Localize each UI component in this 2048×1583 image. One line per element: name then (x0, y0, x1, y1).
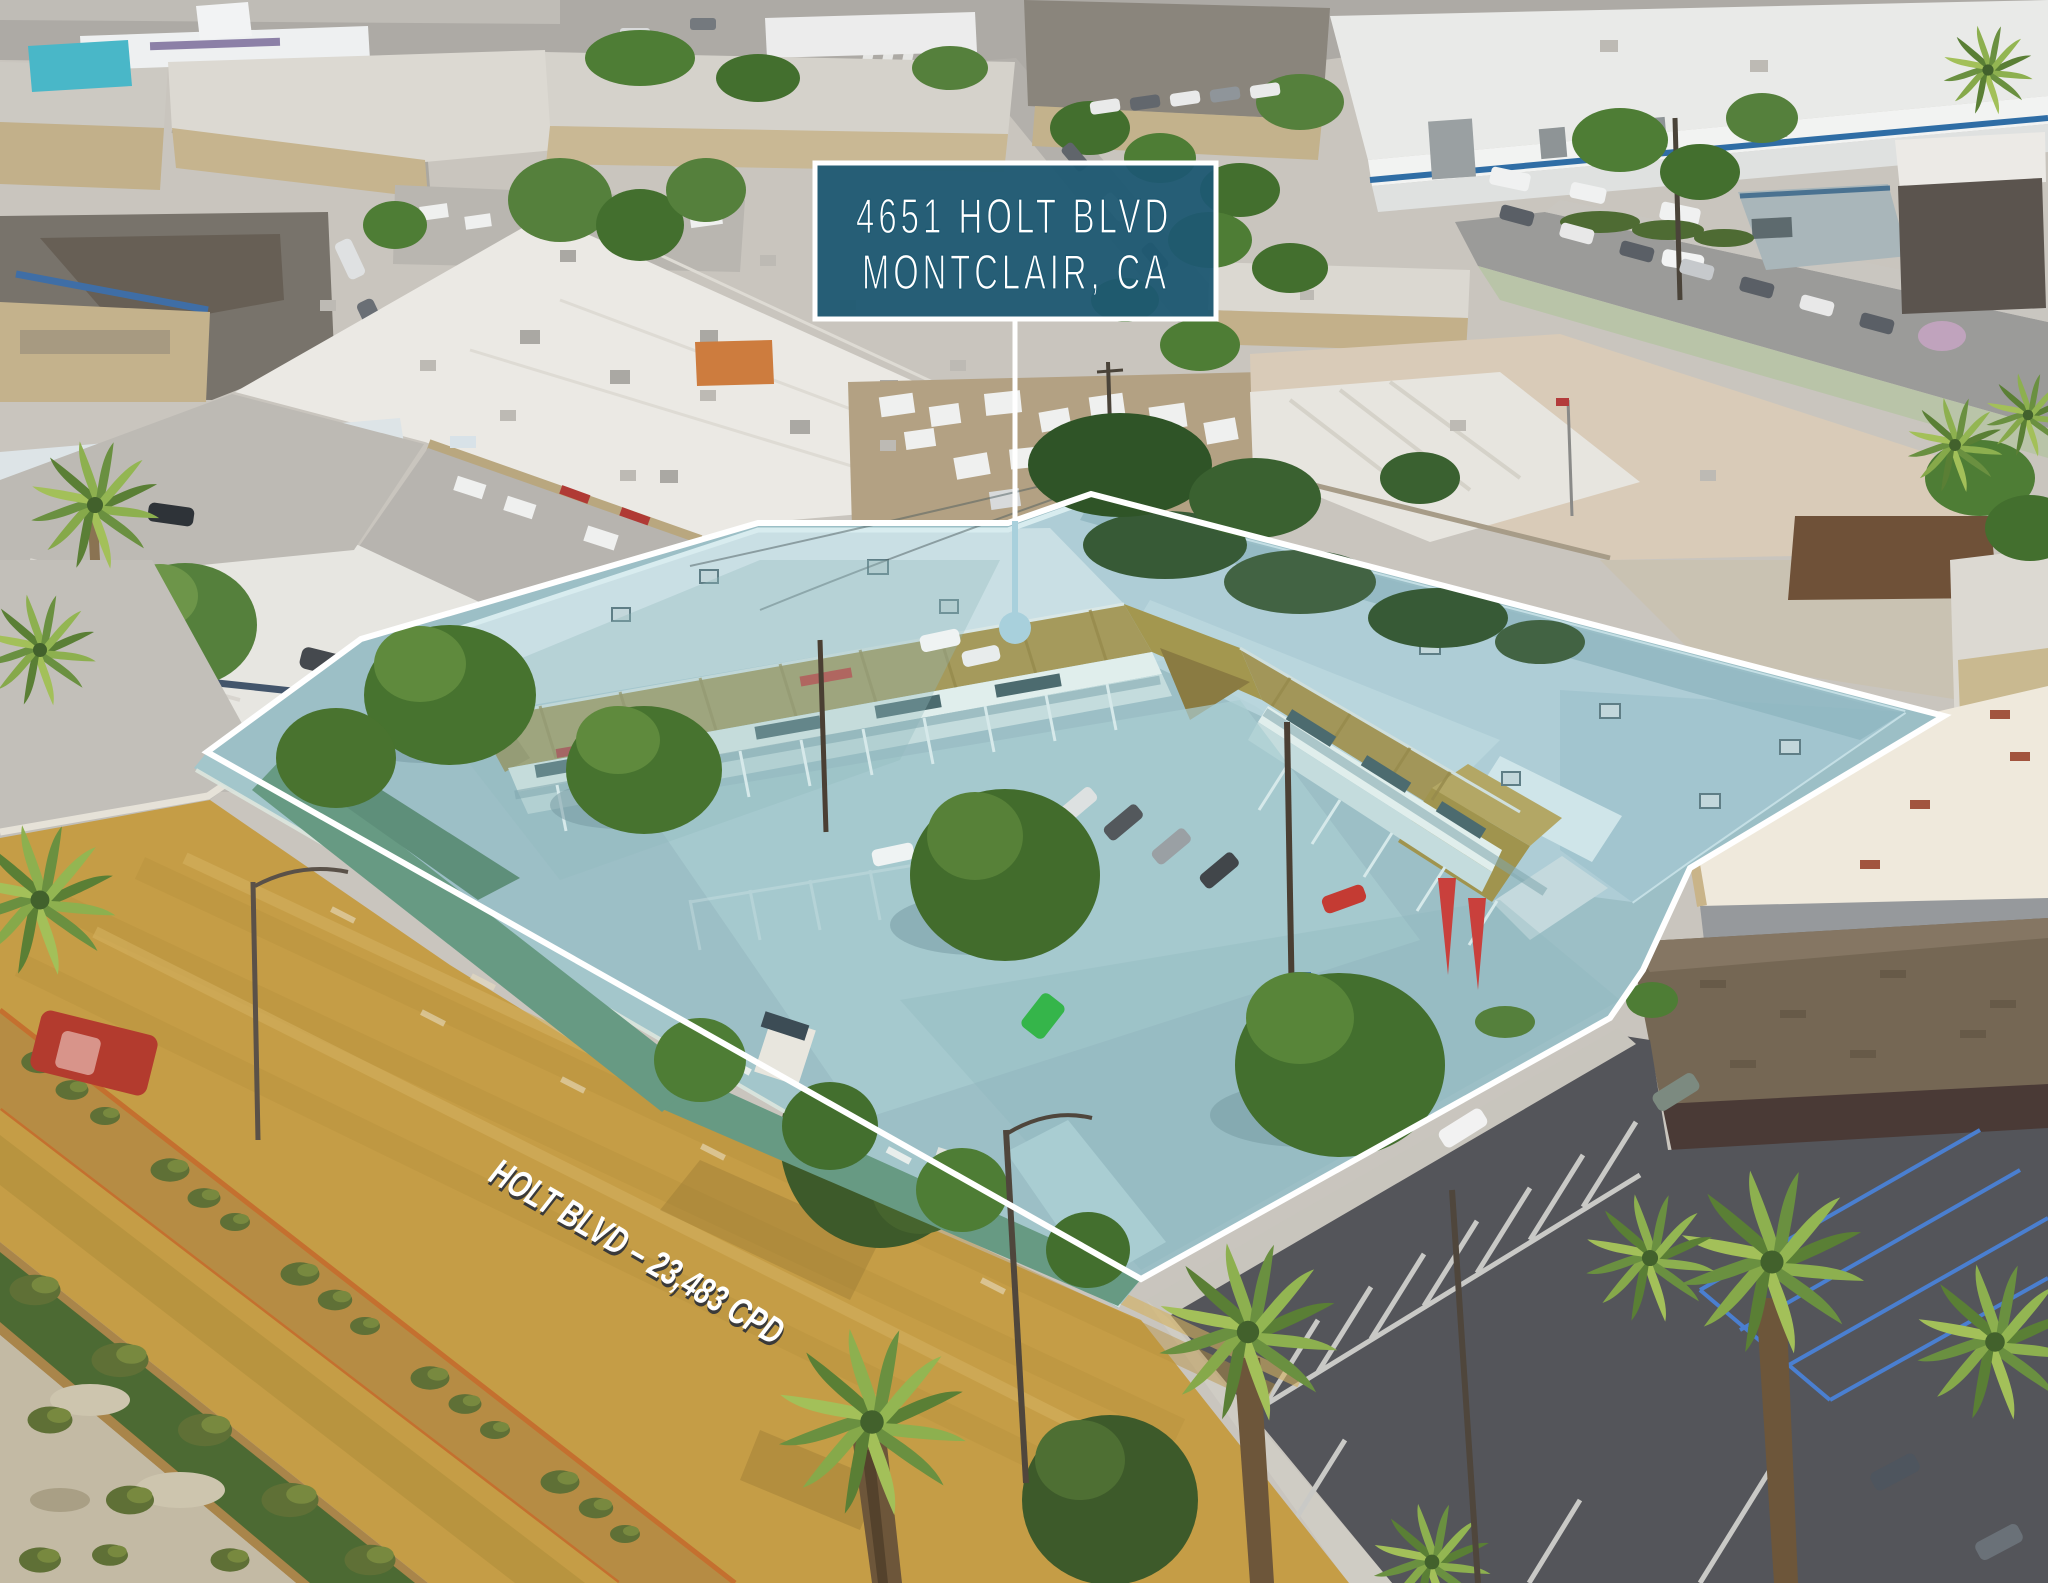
svg-text:4651 HOLT BLVD: 4651 HOLT BLVD (856, 189, 1172, 244)
svg-text:MONTCLAIR, CA: MONTCLAIR, CA (862, 245, 1170, 300)
